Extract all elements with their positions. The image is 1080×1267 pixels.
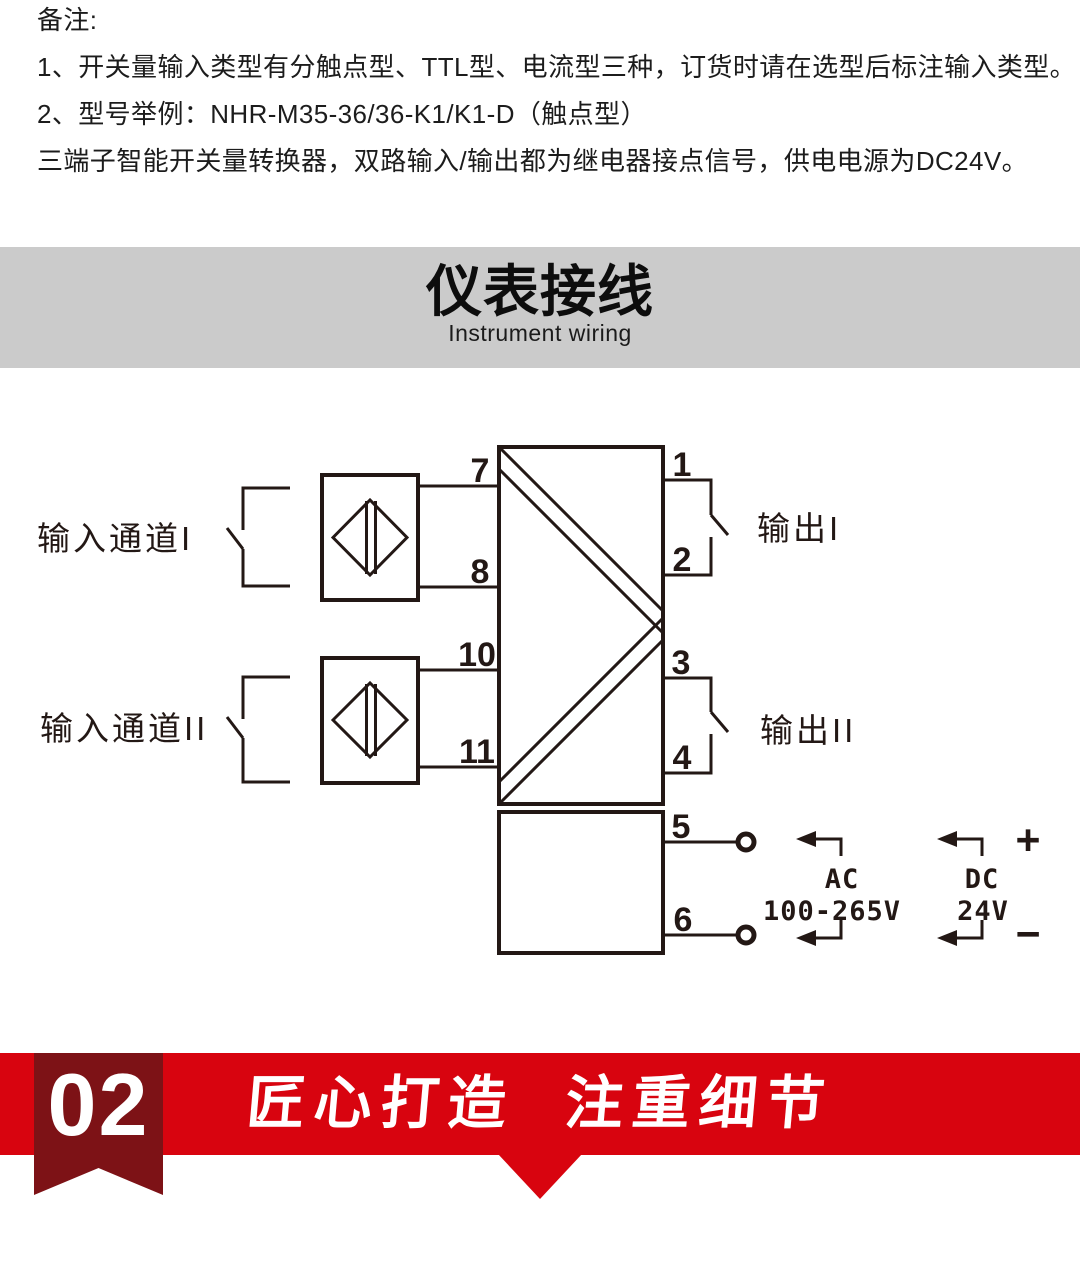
input-switch-2-icon (227, 677, 290, 782)
footer-title: 匠心打造 注重细节 (244, 1075, 835, 1133)
input-channel-1-label: 输入通道I (37, 520, 193, 557)
section-number-badge: 02 (34, 1053, 163, 1195)
terminal-2-label: 2 (673, 541, 692, 579)
notes-title: 备注: (37, 6, 97, 36)
input-wires (418, 486, 499, 767)
pointer-triangle-icon (498, 1154, 582, 1199)
sensor-symbol-2-icon (322, 658, 418, 783)
power-box (499, 812, 663, 953)
sensor-symbol-1-icon (322, 475, 418, 600)
section-banner: 仪表接线 Instrument wiring (0, 247, 1080, 368)
banner-title: 仪表接线 (0, 247, 1080, 320)
input-switch-1-icon (227, 488, 290, 586)
terminal-8-label: 8 (471, 553, 490, 591)
wiring-diagram: 7 8 10 11 1 2 3 4 5 6 输入通道I 输入通道II 输出I 输… (0, 428, 1080, 973)
terminal-3-label: 3 (672, 644, 691, 682)
note-line-2: 2、型号举例：NHR-M35-36/36-K1/K1-D（触点型） (37, 100, 647, 130)
output-2-label: 输出II (760, 712, 856, 749)
isolator-box (499, 447, 663, 804)
dc-label: DC (965, 864, 1000, 895)
plus-sign: + (1016, 817, 1040, 863)
note-line-3: 三端子智能开关量转换器，双路输入/输出都为继电器接点信号，供电电源为DC24V。 (37, 147, 1028, 177)
terminal-6-label: 6 (674, 901, 693, 939)
terminal-10-label: 10 (458, 636, 496, 674)
terminal-7-label: 7 (471, 452, 490, 490)
section-number: 02 (48, 1061, 150, 1149)
note-line-1: 1、开关量输入类型有分触点型、TTL型、电流型三种，订货时请在选型后标注输入类型… (37, 53, 1076, 83)
dc-voltage-label: 24V (957, 896, 1009, 927)
ac-range-label: 100-265V (763, 896, 901, 927)
terminal-11-label: 11 (459, 733, 495, 771)
terminal-4-label: 4 (673, 739, 692, 777)
minus-sign: − (1016, 911, 1040, 957)
output-1-label: 输出I (757, 510, 841, 547)
terminal-5-label: 5 (672, 808, 691, 846)
terminal-1-label: 1 (673, 446, 692, 484)
ac-label: AC (825, 864, 860, 895)
input-channel-2-label: 输入通道II (40, 710, 208, 747)
banner-subtitle: Instrument wiring (0, 320, 1080, 347)
product-page: 备注: 1、开关量输入类型有分触点型、TTL型、电流型三种，订货时请在选型后标注… (0, 0, 1080, 1267)
